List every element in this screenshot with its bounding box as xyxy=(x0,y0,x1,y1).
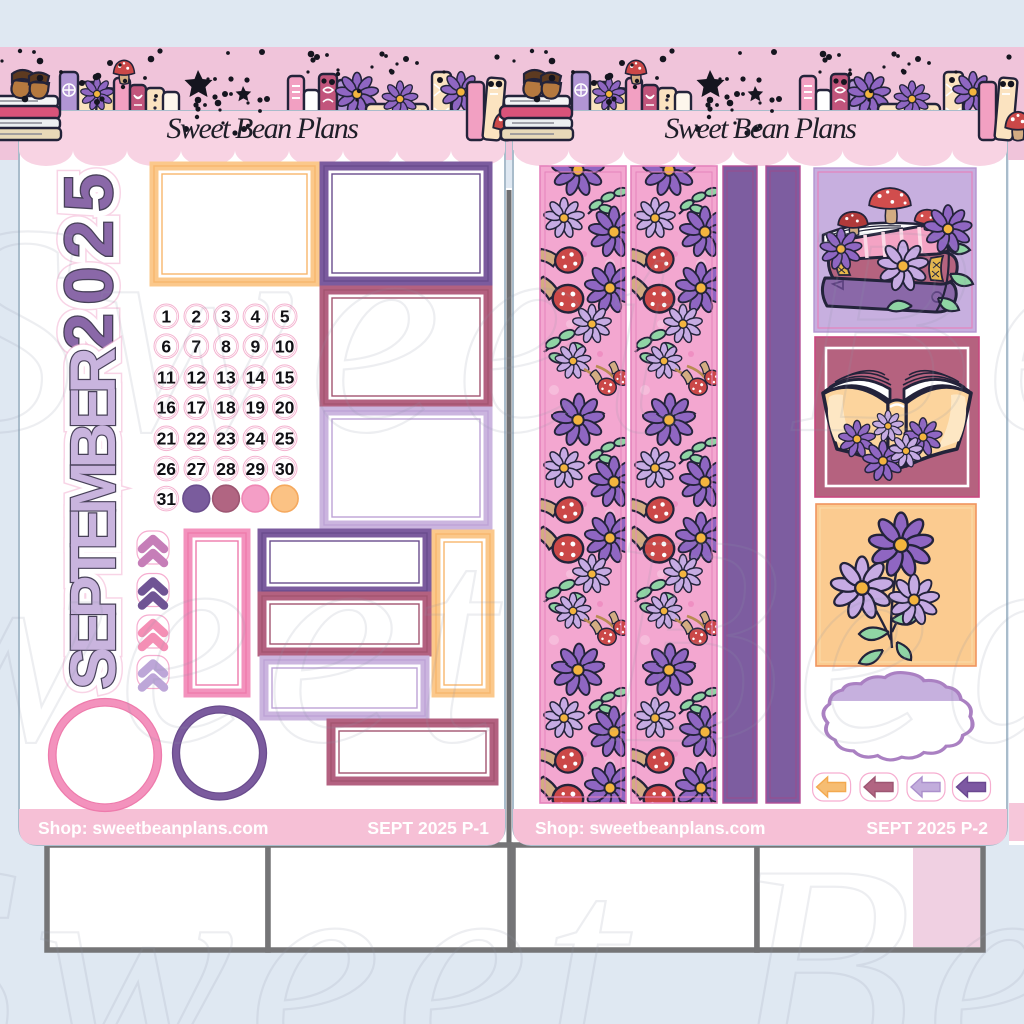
svg-text:Sweet Bean Plans: Sweet Bean Plans xyxy=(0,163,1024,495)
svg-text:Sweet Bean Plans: Sweet Bean Plans xyxy=(0,803,1024,1024)
svg-text:Sweet Bean Plans: Sweet Bean Plans xyxy=(167,112,359,145)
svg-text:Sweet Bean Plans: Sweet Bean Plans xyxy=(665,112,857,145)
svg-text:Sweet Bean Plans: Sweet Bean Plans xyxy=(0,473,1024,805)
